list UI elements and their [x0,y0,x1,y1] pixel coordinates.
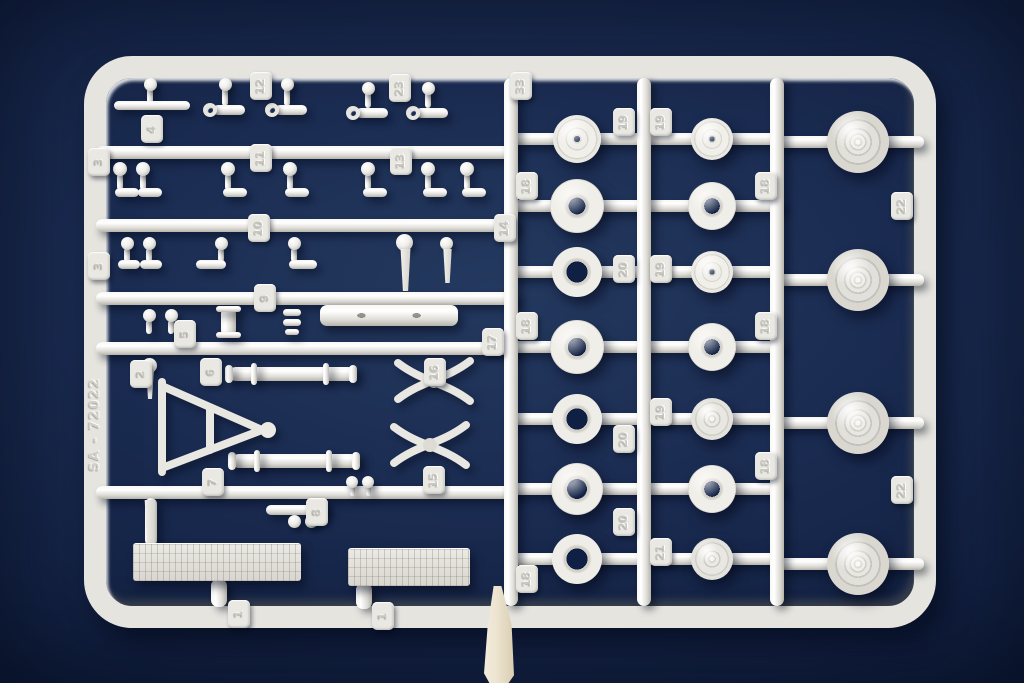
runner-vertical [770,78,784,606]
part-bar [326,450,332,472]
part-ball [143,237,156,250]
part-bar [146,320,152,334]
part-ball [421,162,435,176]
part-ring [346,106,360,120]
part-ring [406,106,420,120]
runner-horizontal [96,146,518,159]
part-number-tag: 17 [482,328,504,356]
part-bar [363,188,387,197]
wheel-wheel-full [827,533,889,595]
part-number-tag: 1 [372,602,394,630]
runner-horizontal [96,219,518,232]
part-number-tag: 12 [250,72,272,100]
part-ball [362,476,374,488]
part-grille-plate [133,543,301,581]
photo-background: SA - 72022 12233343111331014952616171578… [0,0,1024,683]
part-grille-plate [348,548,470,586]
part-ball [346,476,358,488]
part-bar [211,579,227,607]
part-ball [143,309,156,322]
part-ball [362,82,375,95]
part-bar [138,188,162,197]
part-number-tag: 3 [88,148,110,176]
part-bar [216,306,241,312]
part-number-tag: 13 [390,147,412,175]
part-number-tag: 6 [200,358,222,386]
sprue-code-label: SA - 72022 [75,368,115,480]
part-number-tag: 22 [891,192,913,220]
part-number-tag: 10 [248,214,270,242]
part-ball [219,78,232,91]
runner-horizontal [96,292,518,305]
wheel-disc-hub [691,538,733,580]
wheel-ring [552,534,602,584]
part-number-tag: 2 [130,360,152,388]
part-number-tag: 18 [755,452,777,480]
part-number-tag: 20 [613,255,635,283]
part-number-tag: 14 [494,214,516,242]
part-ball [288,515,301,528]
part-ball [288,237,301,250]
part-number-tag: 18 [516,312,538,340]
part-ball [121,237,134,250]
wheel-ring [552,247,602,297]
part-number-tag: 5 [174,320,196,348]
wheel-tire [550,320,604,374]
part-ball [283,162,297,176]
part-number-tag: 1 [228,600,250,628]
part-bar [223,188,247,197]
wheel-wheel-full [827,392,889,454]
part-number-tag: 19 [650,255,672,283]
part-number-tag: 20 [613,425,635,453]
wheel-wheel-full [827,249,889,311]
part-bar [285,188,309,197]
part-bar [462,188,486,197]
wheel-tire [550,179,604,233]
part-number-tag: 16 [424,358,446,386]
part-number-tag: 19 [650,108,672,136]
part-ring [203,103,217,117]
part-ball [136,162,150,176]
part-number-tag: 9 [254,284,276,312]
part-number-tag: 8 [306,498,328,526]
part-number-tag: 23 [389,74,411,102]
part-ball [281,78,294,91]
part-number-tag: 33 [510,72,532,100]
part-ball [396,234,413,251]
part-bar [283,309,301,316]
sprue-code-text: SA - 72022 [88,377,103,471]
wheel-ring [552,394,602,444]
part-bar [283,319,301,326]
wheel-disc-hole [553,115,601,163]
wheel-tire [688,182,736,230]
part-bar [140,260,162,269]
part-bar [196,260,226,269]
part-ball [221,162,235,176]
part-bar [352,452,360,470]
part-number-tag: 19 [613,108,635,136]
part-ball [215,237,228,250]
runner-vertical [504,78,518,606]
part-bar [416,108,448,118]
part-number-tag: 18 [516,172,538,200]
wheel-tire [551,463,603,515]
runner-vertical [637,78,651,606]
sprue-frame-photo: SA - 72022 12233343111331014952616171578… [0,0,1024,683]
runner-horizontal [96,486,518,499]
part-number-tag: 3 [88,252,110,280]
part-bar [423,188,447,197]
part-ring [265,103,279,117]
part-bar [216,332,241,338]
part-bar [285,329,299,335]
part-bar [356,583,372,609]
part-number-tag: 18 [755,172,777,200]
part-bar [349,365,357,383]
part-bar [275,105,307,115]
part-bar [289,260,317,269]
wheel-disc-hole [691,251,733,293]
part-number-tag: 7 [202,468,224,496]
part-bar [323,363,329,385]
part-bar [114,101,190,110]
wheel-tire [688,323,736,371]
part-ball [144,78,157,91]
part-number-tag: 11 [250,144,272,172]
part-bar [115,188,139,197]
part-tow-frame [152,378,280,476]
part-number-tag: 20 [613,508,635,536]
part-number-tag: 21 [650,538,672,566]
part-number-tag: 18 [755,312,777,340]
part-ball [460,162,474,176]
part-ball [440,237,453,250]
part-bar [213,105,245,115]
wheel-wheel-full [827,111,889,173]
part-ball [422,82,435,95]
part-ball [113,162,127,176]
wheel-disc-hub [691,398,733,440]
part-beam [320,305,458,326]
part-number-tag: 18 [516,565,538,593]
part-number-tag: 15 [423,466,445,494]
part-number-tag: 4 [141,115,163,143]
part-leaf-spring-set [389,418,471,472]
wheel-tire [688,465,736,513]
part-number-tag: 22 [891,476,913,504]
wheel-disc-hole [691,118,733,160]
part-ball [361,162,375,176]
part-bar [118,260,140,269]
part-number-tag: 19 [650,398,672,426]
part-bar [356,108,388,118]
